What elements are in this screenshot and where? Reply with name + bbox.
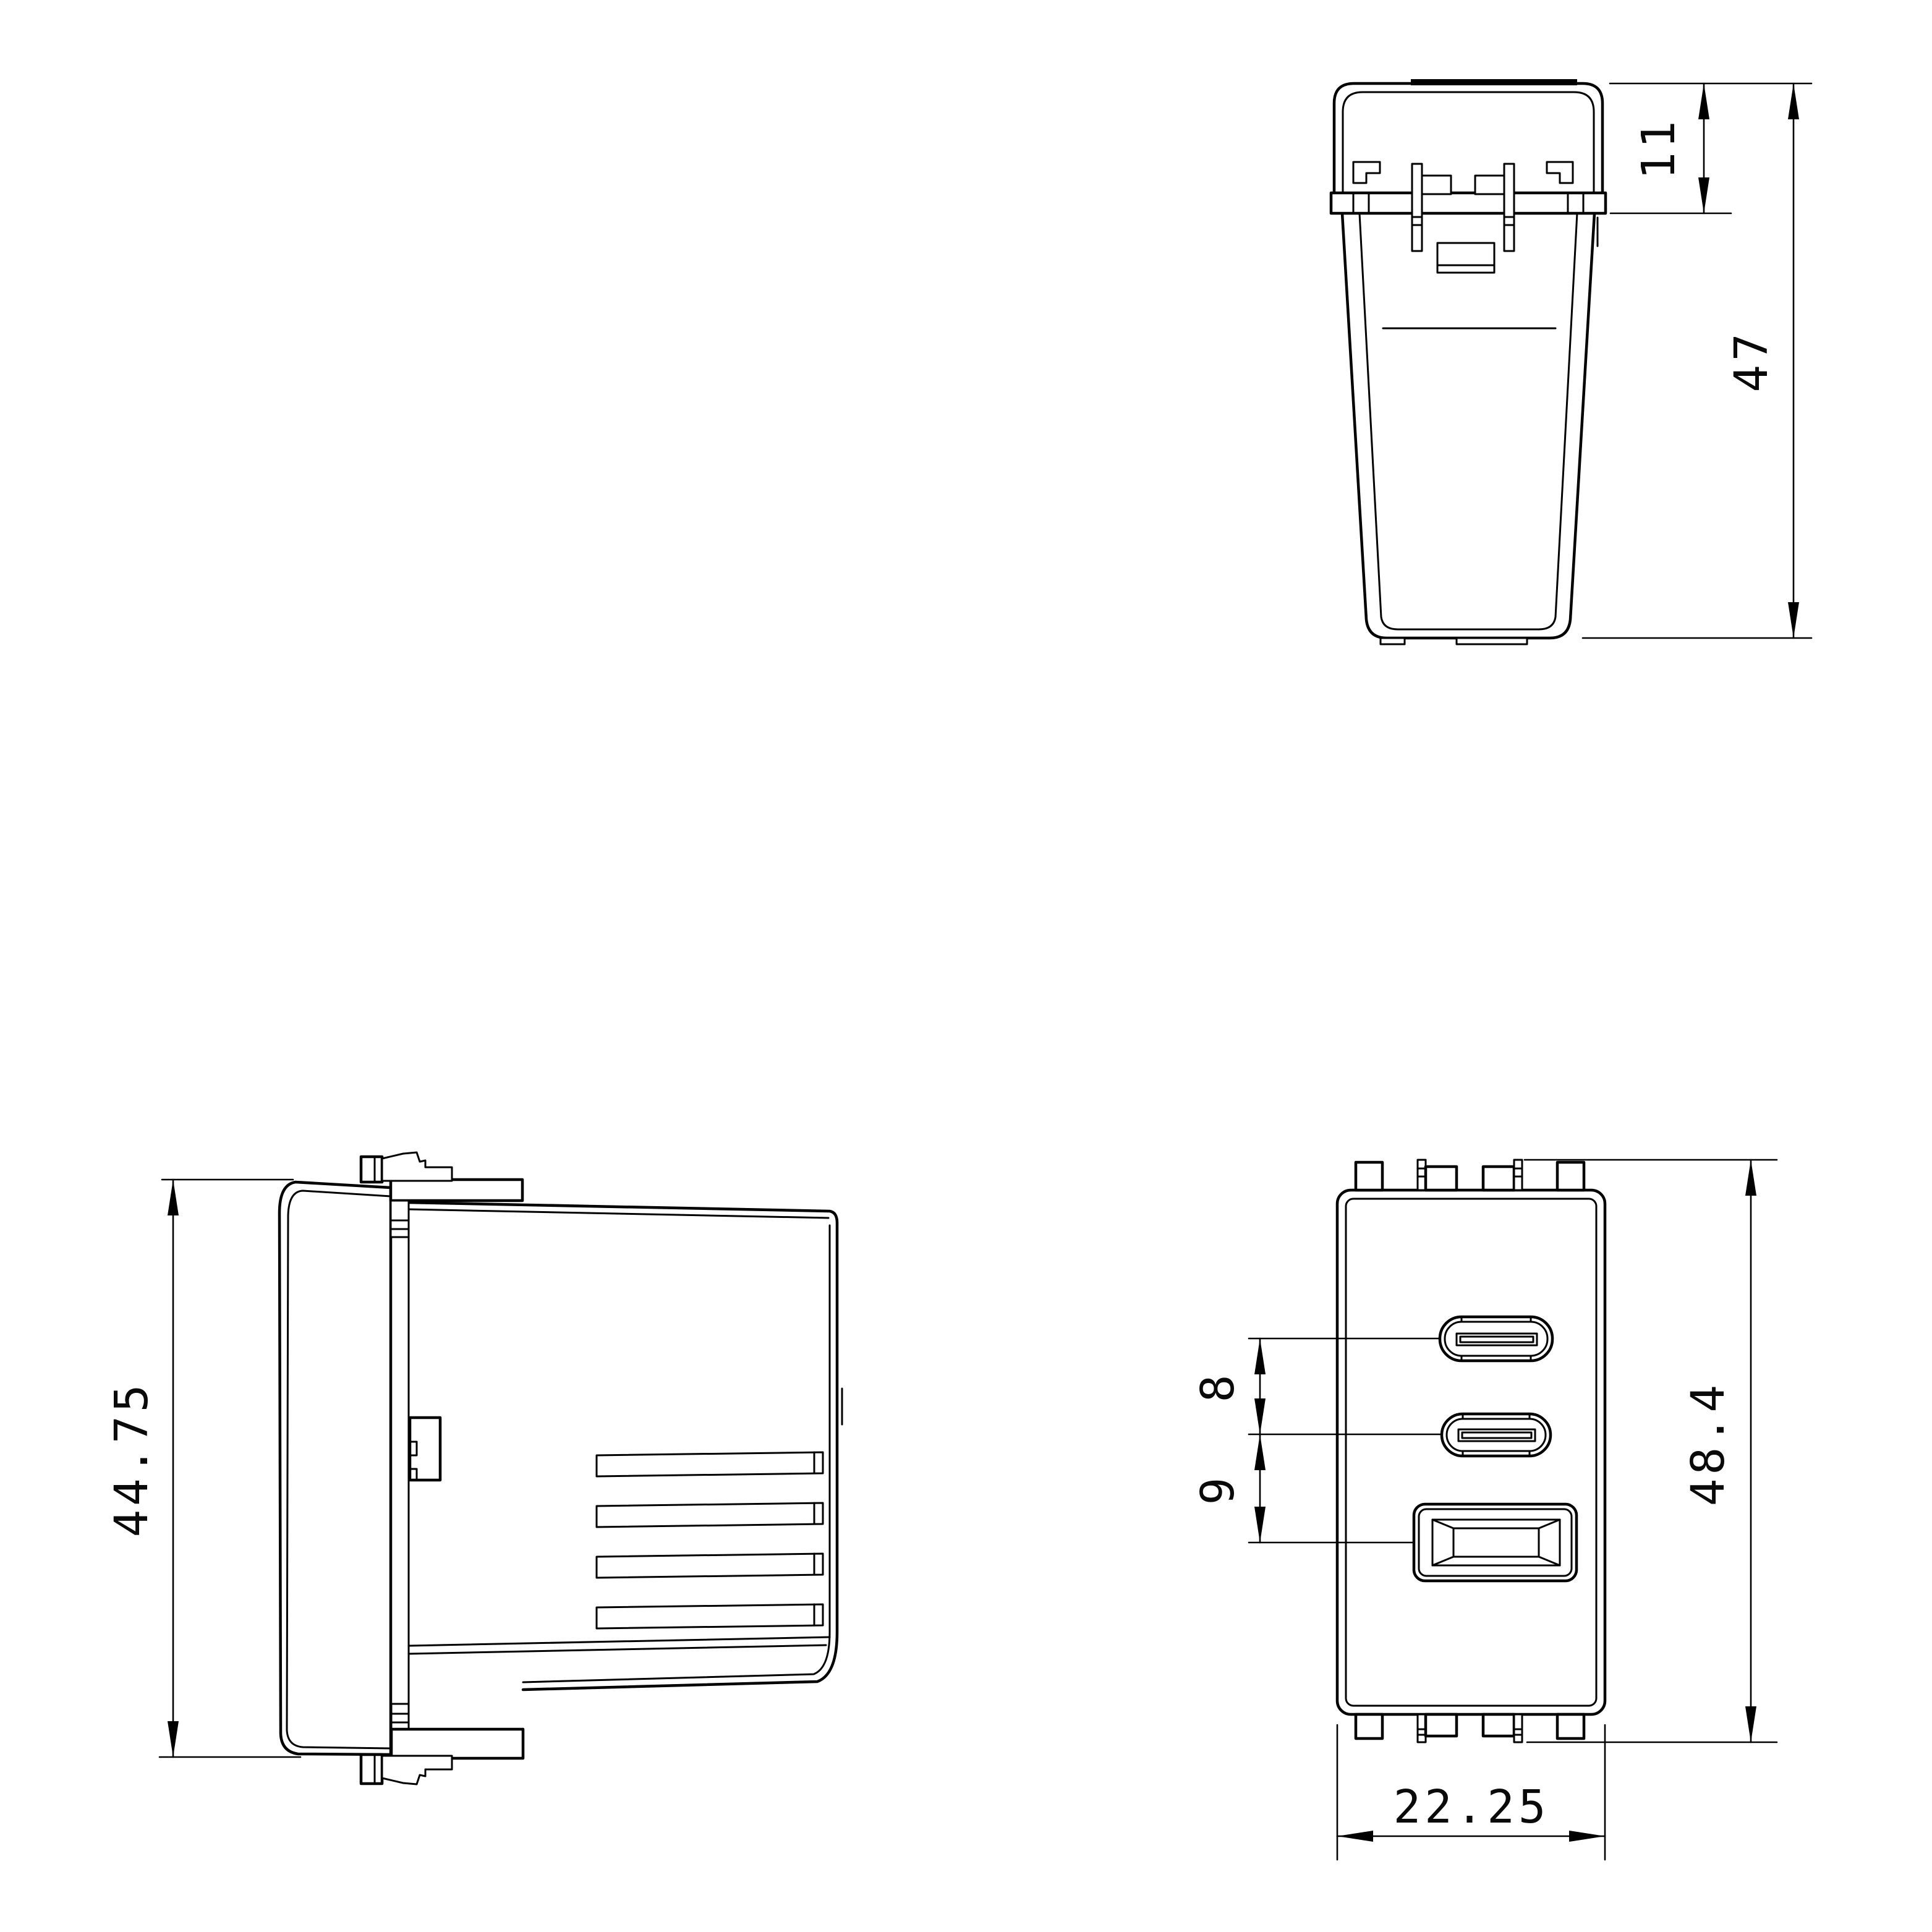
bottom-flange xyxy=(391,1704,523,1758)
arrowhead-up xyxy=(1254,1434,1266,1470)
faceplate-top-tabs xyxy=(1356,1160,1584,1190)
technical-drawing-page: 11 47 xyxy=(0,0,1932,1932)
cad-drawing: 11 47 xyxy=(0,0,1932,1932)
dimension-side-height: 44.75 xyxy=(105,1180,300,1757)
dimension-total-depth: 47 xyxy=(1583,83,1811,638)
dim-label-front-width: 22.25 xyxy=(1394,1781,1550,1834)
prong-tab xyxy=(1422,176,1451,194)
arrowhead-down xyxy=(1254,1507,1266,1543)
top-view: 11 47 xyxy=(1331,82,1811,644)
dim-label-front-height: 48.4 xyxy=(1682,1381,1735,1506)
dim-label-usb-c-spacing: 8 xyxy=(1191,1371,1245,1403)
arrowhead-down xyxy=(1254,1398,1266,1434)
arrowhead-up xyxy=(1254,1338,1266,1374)
bottom-foot xyxy=(1457,638,1527,644)
arrowhead-up xyxy=(168,1180,179,1215)
corner-clip-left xyxy=(1353,162,1380,183)
arrowhead-up xyxy=(1698,83,1709,119)
dim-label-side-height: 44.75 xyxy=(105,1381,158,1538)
arrowhead-up xyxy=(1745,1160,1756,1196)
label-plate xyxy=(1437,243,1494,273)
front-plate xyxy=(279,1182,391,1755)
corner-clip-right xyxy=(1547,162,1573,183)
side-view: 44.75 xyxy=(105,1152,842,1784)
arrowhead-right xyxy=(1569,1831,1605,1842)
module-body xyxy=(1342,213,1598,644)
dimension-clip-depth: 11 xyxy=(1610,83,1811,213)
vent-slots xyxy=(597,1452,823,1628)
rear-body xyxy=(409,1202,842,1722)
faceplate xyxy=(1337,1190,1605,1714)
top-mounting-tab xyxy=(361,1152,452,1182)
dim-label-clip-depth: 11 xyxy=(1632,117,1685,179)
arrowhead-down xyxy=(168,1721,179,1757)
dim-label-usb-a-spacing: 9 xyxy=(1191,1474,1245,1505)
arrowhead-down xyxy=(1698,177,1709,213)
top-flange xyxy=(391,1180,522,1237)
arrowhead-down xyxy=(1745,1706,1756,1742)
dim-label-total-depth: 47 xyxy=(1725,330,1778,392)
arrowhead-up xyxy=(1788,83,1799,119)
arrowhead-left xyxy=(1337,1831,1373,1842)
mounting-flange xyxy=(1331,193,1606,213)
prong-tab xyxy=(1475,176,1504,194)
front-view: 8 9 48.4 22.25 xyxy=(1191,1160,1777,1860)
faceplate-bottom-tabs xyxy=(1356,1714,1584,1742)
arrowhead-down xyxy=(1788,602,1799,638)
retaining-clip xyxy=(410,1418,440,1480)
bottom-mounting-tab xyxy=(361,1755,452,1784)
bottom-foot xyxy=(1381,638,1405,644)
dimension-front-width: 22.25 xyxy=(1337,1725,1605,1860)
